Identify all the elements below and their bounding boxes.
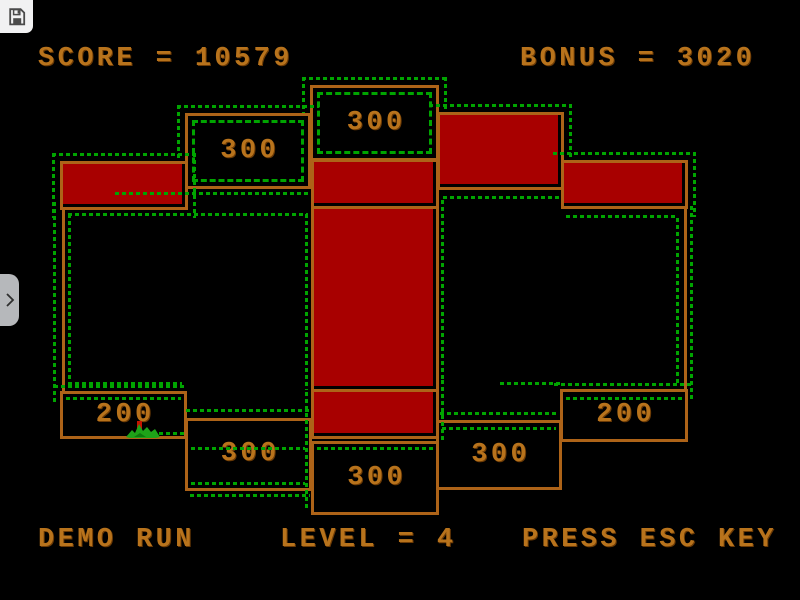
marching-ants: [690, 206, 693, 400]
claimed-left: [60, 161, 188, 210]
zone-300-bottom-right: 300: [436, 420, 562, 490]
marching-ants: [554, 383, 694, 386]
marching-ants: [68, 213, 308, 216]
marching-ants: [305, 214, 308, 390]
zone-bonus-value: 300: [468, 442, 530, 469]
marching-ants: [553, 152, 696, 155]
marching-ants: [177, 105, 319, 108]
marching-ants: [54, 385, 184, 388]
marching-ants: [68, 214, 71, 384]
claimed-center-bottom: [311, 389, 439, 439]
score-display: SCORE = 10579: [38, 46, 293, 73]
zone-200-bottom-left: 200: [60, 391, 187, 439]
boundary-line: [684, 208, 687, 392]
sidebar-toggle-tab[interactable]: [0, 274, 19, 326]
claimed-top-right: [437, 112, 564, 190]
marching-ants: [186, 409, 312, 412]
lizard-creature: [126, 420, 162, 439]
chevron-right-icon: [4, 292, 16, 308]
zone-300-top-center: 300: [310, 85, 439, 161]
claimed-center-top: [311, 159, 439, 209]
marching-ants: [52, 153, 196, 156]
claimed-right: [561, 160, 688, 209]
zone-bonus-value: 300: [217, 441, 279, 468]
zone-bonus-value: 300: [344, 465, 406, 492]
marching-ants: [566, 215, 678, 218]
zone-bonus-value: 200: [593, 402, 655, 429]
boundary-line: [62, 209, 65, 394]
marching-ants: [693, 152, 696, 217]
zone-300-bottom-center: 300: [311, 441, 439, 515]
marching-ants: [302, 77, 447, 80]
game-screen: 300300200300300300200 SCORE = 10579 BONU…: [0, 0, 800, 600]
bonus-display: BONUS = 3020: [520, 46, 755, 73]
marching-ants: [68, 382, 182, 385]
zone-bonus-value: 300: [343, 110, 405, 137]
press-esc-hint: PRESS ESC KEY: [522, 527, 777, 554]
zone-300-top-left: 300: [185, 113, 311, 189]
floppy-disk-icon: [7, 7, 27, 27]
marching-ants: [429, 104, 572, 107]
zone-200-bottom-right: 200: [560, 389, 688, 442]
demo-run-label: DEMO RUN: [38, 527, 195, 554]
zone-300-bottom-left: 300: [185, 418, 312, 491]
zone-bonus-value: 300: [217, 138, 279, 165]
marching-ants: [53, 202, 56, 402]
marching-ants: [52, 153, 55, 218]
marching-ants: [443, 196, 559, 199]
marching-ants: [500, 382, 560, 385]
marching-ants: [676, 218, 679, 384]
playfield: 300300200300300300200: [0, 0, 800, 600]
marching-ants: [440, 412, 558, 415]
marching-ants: [441, 200, 444, 382]
marching-ants: [190, 494, 310, 497]
claimed-center-middle: [311, 206, 439, 392]
level-display: LEVEL = 4: [280, 527, 456, 554]
save-state-button[interactable]: [0, 0, 33, 33]
